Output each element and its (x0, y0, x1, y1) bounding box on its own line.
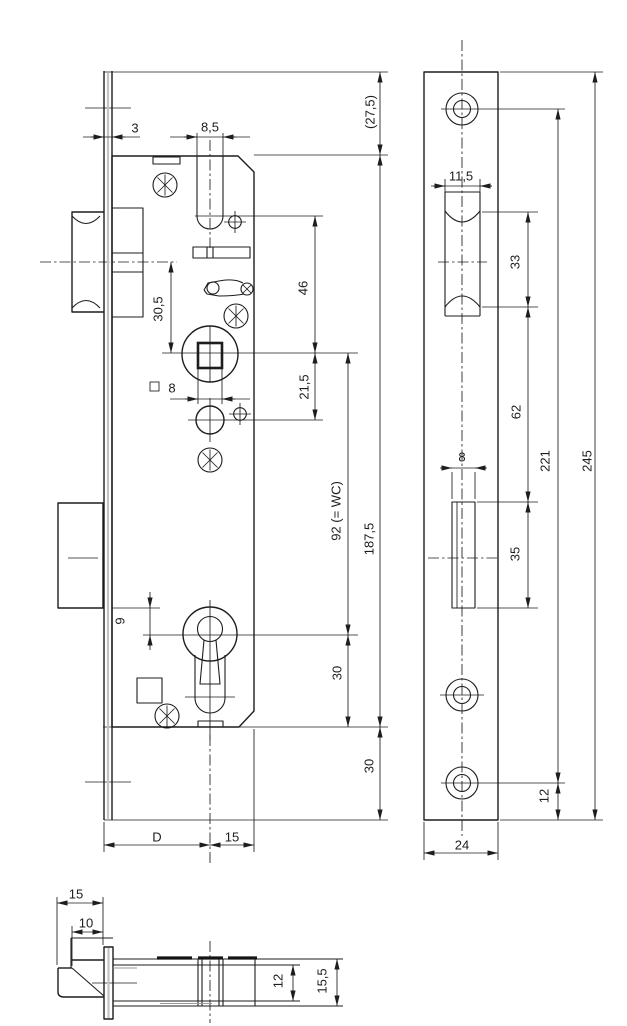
latch-opening (445, 192, 480, 316)
main-dimension-lines (83, 72, 380, 845)
faceplate-front-view: 11,5 33 62 8 35 221 245 12 24 (424, 40, 603, 860)
dim-follower-slot-width: 8,5 (201, 120, 219, 135)
faceplate-edge (104, 71, 112, 820)
lock-case-outline (112, 156, 254, 727)
dim-slot-to-spindle: 46 (296, 281, 311, 295)
dim-deadbolt-to-keyhole: 9 (113, 617, 128, 624)
dim-latch-bevel: 10 (79, 916, 93, 931)
faceplate-outline (424, 72, 498, 820)
deadbolt (58, 503, 103, 608)
case-internal-details (58, 157, 253, 728)
top-tab (153, 157, 180, 164)
bottom-square-hole (137, 678, 162, 703)
phillips-screw-icon (224, 304, 248, 328)
dim-screw-hole-spacing: 221 (538, 450, 553, 472)
dim-faceplate-thickness: 3 (131, 121, 138, 136)
dim-plate-length: 245 (580, 450, 595, 472)
dim-backset: D (152, 830, 161, 845)
small-screw-hole-icon (224, 211, 246, 233)
dim-latch-cutout-height: 33 (508, 255, 523, 269)
dim-spindle-to-cylinder: 21,5 (297, 374, 312, 399)
dim-case-depth: 15,5 (315, 968, 330, 993)
phillips-screw-icon (155, 704, 179, 728)
main-view-lock-case: 3 8,5 (27,5) 30,5 46 8 21,5 92 (= WC) 18… (40, 71, 388, 866)
square-symbol (150, 382, 159, 391)
lock-case-section (113, 958, 343, 1006)
dim-latch-projection: 15 (69, 887, 83, 902)
phillips-screw-icon (153, 173, 177, 197)
dim-keyhole-to-case-bottom: 30 (330, 666, 345, 680)
main-dimension-labels: 3 8,5 (27,5) 30,5 46 8 21,5 92 (= WC) 18… (113, 95, 378, 844)
dim-bolt-cutout-height: 35 (508, 547, 523, 561)
faceplate-dimension-labels: 11,5 33 62 8 35 221 245 12 24 (449, 169, 595, 853)
dim-case-height: 187,5 (362, 523, 377, 556)
dim-case-inner-depth: 12 (271, 974, 286, 988)
small-screw-hole-icon (229, 403, 251, 425)
dim-top-margin: (27,5) (363, 95, 378, 129)
dim-screw-to-plate-end: 12 (537, 789, 552, 803)
section-dimension-lines (57, 903, 337, 1006)
bottom-tab (198, 721, 223, 727)
phillips-screw-icon (198, 448, 222, 472)
dim-latch-to-spindle: 30,5 (151, 296, 166, 321)
faceplate-dimension-lines (424, 72, 595, 853)
spring-lever (204, 280, 253, 296)
deadbolt-opening (452, 502, 475, 608)
faceplate-centerlines (428, 40, 497, 836)
dim-plate-width: 24 (455, 838, 469, 853)
section-extension-lines (57, 897, 137, 983)
dim-spindle-to-back-edge: 15 (225, 830, 239, 845)
lock-drawing-svg: 3 8,5 (27,5) 30,5 46 8 21,5 92 (= WC) 18… (0, 0, 627, 1026)
faceplate-extension-lines (424, 72, 603, 860)
latch-body (112, 208, 143, 317)
dim-spindle-square: 8 (168, 381, 175, 396)
dim-case-bottom-to-plate-end: 30 (362, 759, 377, 773)
main-extension-lines (68, 72, 388, 852)
dim-bolt-cutout-width: 8 (458, 450, 465, 465)
dim-cutout-spacing: 62 (509, 405, 524, 419)
dim-spindle-to-keyhole: 92 (= WC) (329, 481, 344, 541)
dim-latch-cutout-width: 11,5 (449, 169, 473, 184)
bottom-section-view: 15 10 12 15,5 (57, 887, 343, 1024)
technical-drawing-page: 3 8,5 (27,5) 30,5 46 8 21,5 92 (= WC) 18… (0, 0, 627, 1026)
slide-bar (193, 247, 250, 258)
